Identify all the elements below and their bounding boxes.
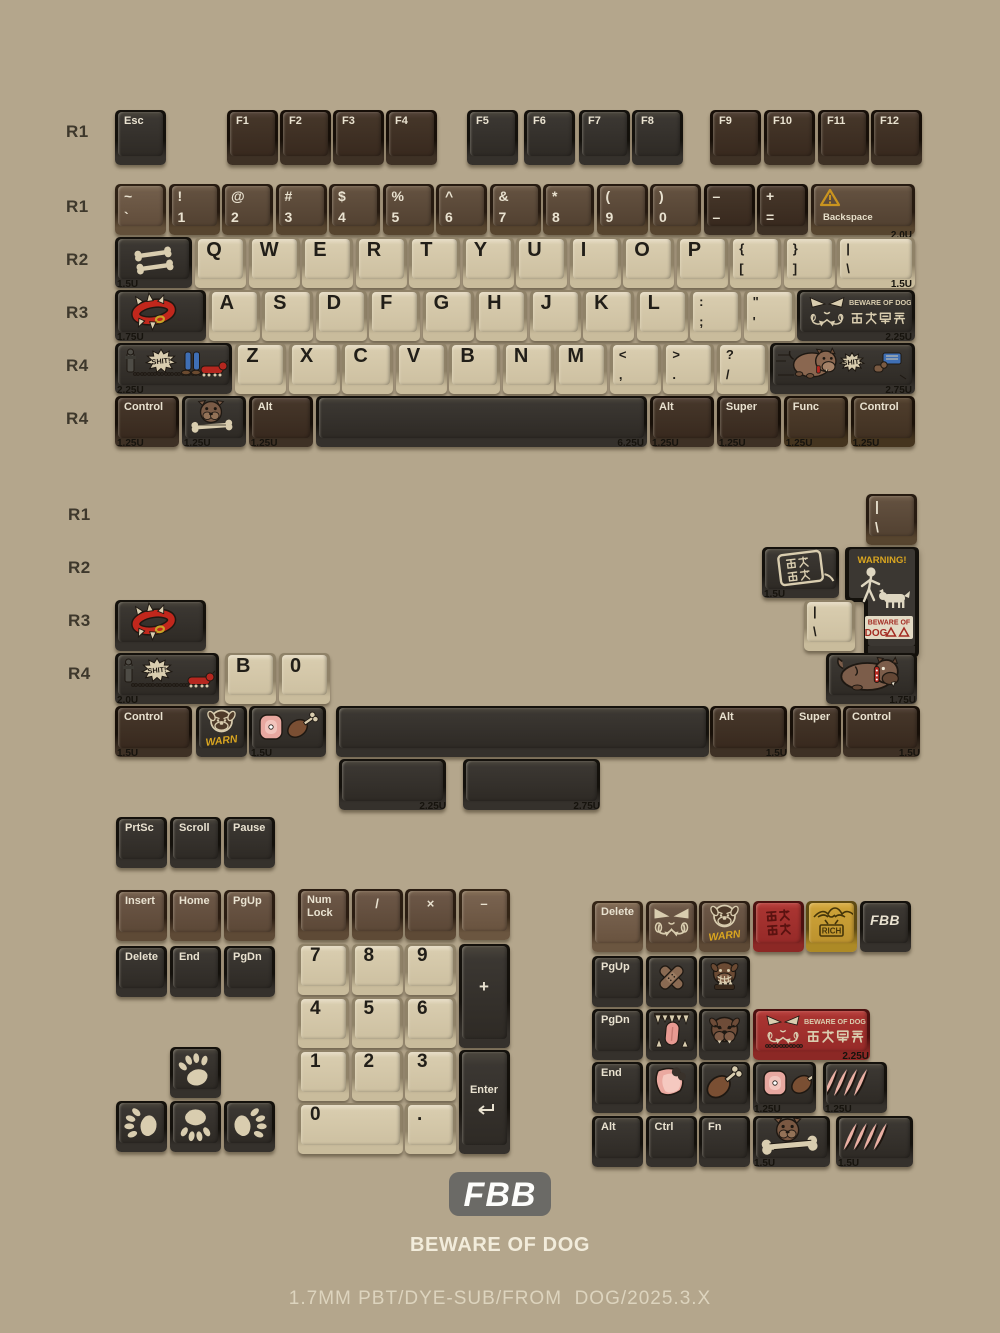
svg-text:DOG: DOG (865, 628, 888, 639)
svg-text:BEWARE OF: BEWARE OF (868, 620, 911, 627)
svg-text:BEWARE OF DOG: BEWARE OF DOG (804, 1017, 866, 1026)
svg-text:BEWARE OF DOG: BEWARE OF DOG (849, 298, 910, 307)
svg-text:RICH: RICH (822, 927, 842, 936)
svg-text:WARN: WARN (708, 928, 742, 942)
svg-text:WARNING!: WARNING! (857, 555, 906, 566)
svg-text:WARN: WARN (205, 733, 239, 747)
svg-text:Backspace: Backspace (823, 212, 873, 223)
